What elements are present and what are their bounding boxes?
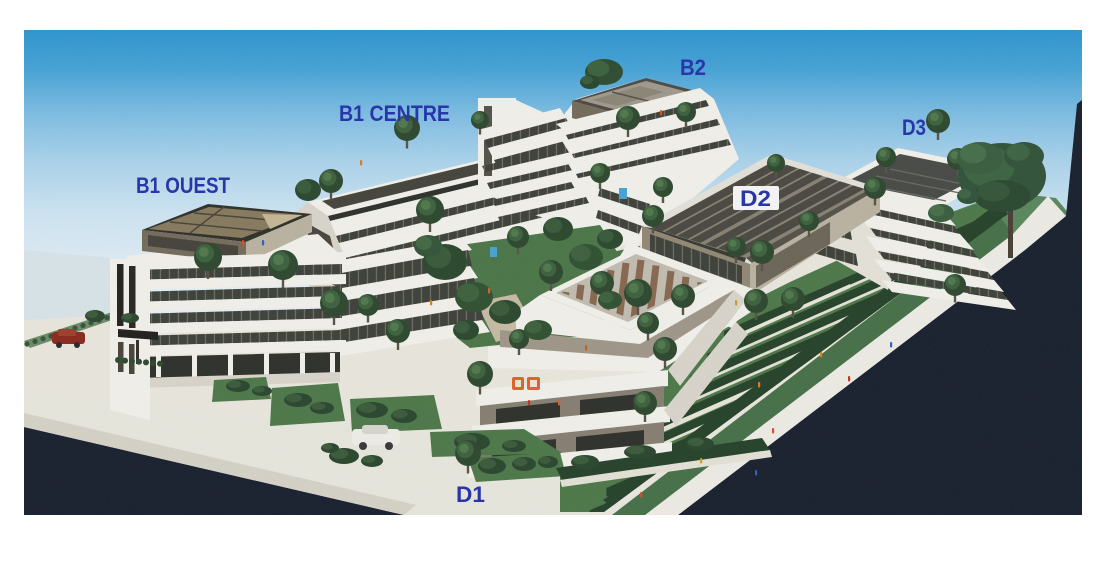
svg-text:B1 CENTRE: B1 CENTRE	[339, 101, 450, 126]
svg-text:D1: D1	[456, 482, 485, 507]
svg-text:D2: D2	[740, 186, 771, 211]
svg-text:B1 OUEST: B1 OUEST	[136, 173, 230, 198]
svg-text:B2: B2	[680, 55, 706, 80]
svg-text:D3: D3	[902, 115, 926, 140]
